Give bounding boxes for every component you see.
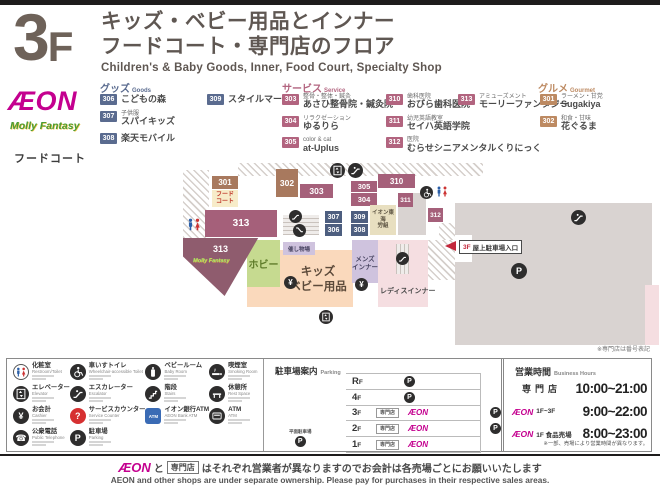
- legend-item-parking: P駐車場Parking: [70, 429, 146, 450]
- store-name: 花ぐるま: [561, 122, 597, 131]
- parking-floor-label: RF: [346, 376, 376, 387]
- hours-header: 営業時間Business Hours: [515, 365, 596, 378]
- legend-item-elevator: エレベーターElevator: [13, 385, 70, 406]
- parking-floor-label: 4F: [346, 392, 376, 403]
- phone-icon: ☎: [13, 430, 29, 446]
- aeon-logo-small: ÆON: [512, 407, 533, 417]
- store-number-badge: 308: [100, 133, 117, 144]
- legend-translation-line: [228, 422, 242, 424]
- title-jp-line1: キッズ・ベビー用品とインナー: [101, 9, 442, 34]
- dir-col-gourmetA: 301ラーメン・甘党Sugakiya302和食・甘味花ぐるま: [540, 94, 640, 131]
- cashier-icon-right: ¥: [355, 278, 368, 291]
- legend-label-en: Wheelchair-accessible Toilet: [89, 370, 143, 375]
- elevator-icon-bottom: [319, 310, 333, 324]
- legend-item-restroom: 化粧室Restroom/Toilet: [13, 363, 70, 384]
- parking-escalator-icon: [571, 210, 586, 225]
- store-name: むらせシニアメンタルくりにっく: [407, 144, 541, 153]
- surface-parking-p-icon: P: [295, 436, 306, 447]
- legend-translation-line: [228, 378, 242, 380]
- footer-jp: ÆON と 専門店 はそれぞれ営業者が異なりますのでお会計は各売場ごとにお願いい…: [0, 460, 660, 475]
- store-number-badge: 312: [386, 137, 403, 148]
- stairs-icon: [145, 386, 161, 402]
- map-block-301: 301: [212, 176, 238, 189]
- smoking-icon: [209, 364, 225, 380]
- store-number-badge: 311: [386, 116, 403, 127]
- aeon-logo-small: ÆON: [512, 429, 533, 439]
- parking-p-icon: P: [490, 423, 501, 434]
- hours-row-aeon: ÆON1F~3F 9:00~22:00: [512, 404, 647, 419]
- wheelchair-icon: [70, 364, 86, 380]
- floor-map: 301 フード コート 302 303 305 304 310 311 312 …: [183, 160, 660, 352]
- legend-translation-line: [89, 422, 103, 424]
- facility-legend: 化粧室Restroom/Toilet車いすトイレWheelchair-acces…: [13, 363, 265, 450]
- elevator-icon: [13, 386, 29, 402]
- store-number-badge: 303: [282, 94, 299, 105]
- legend-label-en: Service Counter: [89, 414, 146, 419]
- parking-p-icon: P: [490, 407, 501, 418]
- legend-label-en: Stairs: [164, 392, 186, 397]
- map-block-307: 307: [325, 211, 342, 223]
- aeon-logo: ÆON: [8, 86, 77, 117]
- directory-item-312: 312医院むらせシニアメンタルくりにっく: [386, 137, 536, 153]
- directory-item-303: 303整骨・整体・鍼灸あさひ整骨院・鍼灸院: [282, 94, 382, 110]
- top-border-bar: [0, 0, 660, 5]
- parking-p-icon: P: [511, 263, 527, 279]
- surface-parking: 平面駐車場 P: [289, 429, 312, 447]
- legend-label-en: AEON Bank ATM: [164, 414, 209, 419]
- map-block-303: 303: [300, 184, 333, 198]
- store-number-badge: 304: [282, 116, 299, 127]
- wheelchair-icon: [420, 186, 433, 199]
- floor-number: 3: [13, 6, 48, 69]
- legend-label-en: Cashier: [32, 414, 54, 419]
- aeon-logo-small: ÆON: [408, 440, 428, 449]
- directory-item-307: 307子供服スパイキッズ: [100, 111, 205, 127]
- legend-label-en: ATM: [228, 414, 250, 419]
- legend-label-en: Rest Space: [228, 392, 250, 397]
- page-title: キッズ・ベビー用品とインナー フードコート・専門店のフロア Children's…: [101, 9, 442, 74]
- store-name: スパイキッズ: [121, 117, 175, 126]
- event-space-area: 催し物場: [283, 242, 315, 255]
- rooftop-parking-entrance-label: 3F 屋上駐車場入口: [459, 240, 522, 254]
- elevator-icon: [330, 163, 345, 178]
- legend-label-en: Baby Room: [164, 370, 202, 375]
- map-block-308: 308: [351, 224, 368, 236]
- goods-header: グッズGoods: [100, 80, 151, 95]
- legend-item-baby: ベビールームBaby Room: [145, 363, 209, 384]
- gourmet-header: グルメGourmet: [538, 80, 595, 95]
- legend-translation-line: [32, 422, 46, 424]
- legend-item-smoking: 喫煙室Smoking Room: [209, 363, 265, 384]
- floor-letter: F: [48, 25, 74, 69]
- parking-table: RFP4FP3F専門店ÆONP2F専門店ÆONP1F専門店ÆON: [346, 373, 481, 453]
- map-block-309: 309: [351, 211, 368, 223]
- right-edge-area: [645, 285, 659, 345]
- legend-label-en: Elevator: [32, 392, 70, 397]
- senmonten-label: 専門店: [376, 408, 399, 418]
- aeon-logo-small: ÆON: [408, 424, 428, 433]
- senmonten-label: 専門店: [376, 440, 399, 450]
- store-number-badge: 307: [100, 111, 117, 122]
- dir-col-goodsA: 306こどもの森307子供服スパイキッズ308楽天モバイル: [100, 94, 205, 144]
- map-block-312: 312: [428, 208, 443, 222]
- map-block-310: 310: [378, 174, 415, 188]
- hours-row-senmonten: 専門店 10:00~21:00: [512, 381, 647, 396]
- cashier-icon: ¥: [13, 408, 29, 424]
- store-number-badge: 309: [207, 94, 224, 105]
- parking-floor-label: 1F: [346, 439, 376, 450]
- legend-item-escalator: エスカレーターEscalator: [70, 385, 146, 406]
- store-name: あさひ整骨院・鍼灸院: [303, 100, 393, 109]
- legend-label-en: Smoking Room: [228, 370, 257, 375]
- parking-row-3F: 3F専門店ÆONP: [346, 406, 480, 422]
- escalator-icon: [348, 163, 363, 178]
- parking-p-icon: P: [404, 392, 415, 403]
- store-number-badge: 306: [100, 94, 117, 105]
- parking-guide-header: 駐車場案内Parking: [275, 365, 341, 377]
- baby-icon: [145, 364, 161, 380]
- store-name: Sugakiya: [561, 100, 603, 109]
- aeon-logo-footer: ÆON: [118, 460, 151, 475]
- directory-item-301: 301ラーメン・甘党Sugakiya: [540, 94, 640, 110]
- legend-translation-line: [32, 400, 46, 402]
- atm-icon: [209, 408, 225, 424]
- map-food-court-box: フード コート: [212, 190, 238, 207]
- restroom-icon-top: [435, 186, 449, 198]
- legend-label-en: Parking: [89, 436, 111, 441]
- store-number-badge: 301: [540, 94, 557, 105]
- store-name: セイハ英語学院: [407, 122, 470, 131]
- escalator-down-icon: [293, 224, 306, 237]
- legend-label-en: Escalator: [89, 392, 133, 397]
- hours-note: ※一部、売場により営業時間が異なります。: [544, 439, 648, 447]
- senmonten-box: 専門店: [167, 461, 199, 474]
- map-block-305: 305: [351, 181, 377, 192]
- legend-translation-line: [164, 378, 178, 380]
- aeon-logo-small: ÆON: [408, 408, 428, 417]
- escalator-icon: [70, 386, 86, 402]
- parking-icon: P: [70, 430, 86, 446]
- legend-translation-line: [164, 422, 178, 424]
- legend-translation-line: [228, 400, 242, 402]
- directory-item-305: 305color & catat-Uplus: [282, 137, 382, 153]
- molly-fantasy-logo: Molly Fantasy: [10, 120, 79, 132]
- directory-item-306: 306こどもの森: [100, 94, 205, 105]
- aeonbank-icon: ATM: [145, 408, 161, 424]
- restroom-icon: [13, 364, 29, 380]
- store-number-badge: 310: [386, 94, 403, 105]
- store-name: ゆるりら: [303, 122, 351, 131]
- directory-item-302: 302和食・甘味花ぐるま: [540, 116, 640, 132]
- legend-item-phone: ☎公衆電話Public Telephone: [13, 429, 70, 450]
- parking-floor-label: 3F: [346, 407, 376, 418]
- entrance-arrow-icon: [445, 241, 456, 251]
- title-jp-line2: フードコート・専門店のフロア: [101, 34, 442, 59]
- legend-translation-line: [32, 378, 46, 380]
- aeon-office-block: イオン東海 労組: [370, 205, 396, 235]
- parking-row-1F: 1F専門店ÆON: [346, 437, 480, 453]
- map-block-306: 306: [325, 224, 342, 236]
- title-en: Children's & Baby Goods, Inner, Food Cou…: [101, 62, 442, 74]
- store-number-badge: 305: [282, 137, 299, 148]
- store-name: 楽天モバイル: [121, 134, 175, 143]
- map-note: ※専門店は番号表記: [597, 344, 650, 353]
- legend-label-en: Restroom/Toilet: [32, 370, 62, 375]
- map-block-302: 302: [276, 169, 298, 197]
- parking-floor-label: 2F: [346, 423, 376, 434]
- senmonten-label: 専門店: [376, 424, 399, 434]
- ladies-escalator-icon: [396, 252, 409, 265]
- parking-p-icon: P: [404, 376, 415, 387]
- directory-item-304: 304リラクゼーションゆるりら: [282, 116, 382, 132]
- store-number-badge: 313: [458, 94, 475, 105]
- store-number-badge: 302: [540, 116, 557, 127]
- directory-item-308: 308楽天モバイル: [100, 133, 205, 144]
- store-name: at-Uplus: [303, 144, 339, 153]
- restroom-icon-left: [186, 218, 202, 232]
- legend-translation-line: [89, 378, 103, 380]
- parking-row-RF: RFP: [346, 374, 480, 390]
- map-block-311: 311: [398, 193, 413, 207]
- parking-structure-area: [455, 203, 652, 345]
- legend-translation-line: [89, 444, 103, 446]
- floor-indicator: 3 F: [13, 6, 73, 69]
- legend-item-rest: 休憩所Rest Space: [209, 385, 265, 406]
- parking-row-4F: 4FP: [346, 390, 480, 406]
- legend-translation-line: [164, 400, 178, 402]
- legend-translation-line: [32, 444, 46, 446]
- legend-label-en: Public Telephone: [32, 436, 65, 441]
- food-court-label: フードコート: [14, 150, 86, 166]
- info-panel: 化粧室Restroom/Toilet車いすトイレWheelchair-acces…: [6, 358, 652, 452]
- store-name: こどもの森: [121, 95, 166, 104]
- parking-row-2F: 2F専門店ÆONP: [346, 421, 480, 437]
- legend-item-wheelchair: 車いすトイレWheelchair-accessible Toilet: [70, 363, 146, 384]
- legend-item-stairs: 階段Stairs: [145, 385, 209, 406]
- legend-item-aeonbank: ATMイオン銀行ATMAEON Bank ATM: [145, 407, 209, 428]
- footer-en: AEON and other shops are under separate …: [0, 475, 660, 485]
- service-icon: ?: [70, 408, 86, 424]
- footer-divider: [0, 454, 660, 456]
- business-hours-panel: 営業時間Business Hours 専門店 10:00~21:00 ÆON1F…: [501, 359, 653, 451]
- dir-col-serviceA: 303整骨・整体・鍼灸あさひ整骨院・鍼灸院304リラクゼーションゆるりら305c…: [282, 94, 382, 153]
- rest-icon: [209, 386, 225, 402]
- legend-item-service: ?サービスカウンターService Counter: [70, 407, 146, 428]
- service-header: サービスService: [282, 80, 345, 95]
- molly-fantasy-map-logo: Molly Fantasy: [193, 258, 229, 264]
- ladies-inner-label: レディスインナー: [380, 286, 436, 296]
- directory-item-311: 311幼児英語教室セイハ英語学院: [386, 116, 536, 132]
- legend-item-atm: ATMATM: [209, 407, 265, 428]
- cashier-icon-left: ¥: [284, 276, 297, 289]
- legend-item-cashier: ¥お会計Cashier: [13, 407, 70, 428]
- legend-translation-line: [89, 400, 103, 402]
- escalator-up-icon: [289, 210, 302, 223]
- map-block-313-center: 313: [205, 210, 277, 237]
